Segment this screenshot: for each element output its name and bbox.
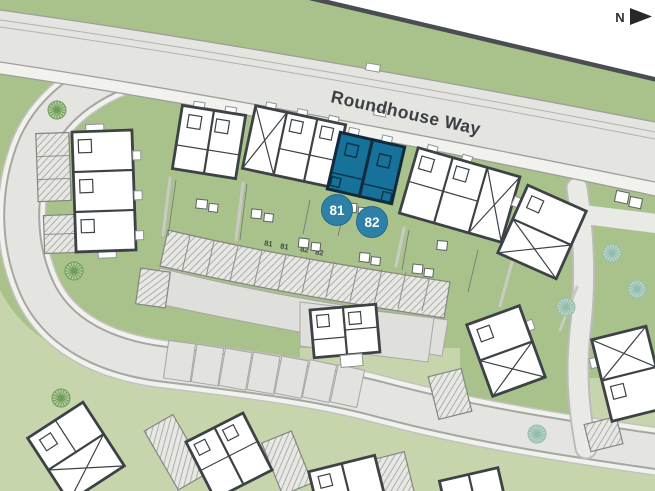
tree-icon xyxy=(65,262,83,280)
tree-icon xyxy=(48,101,66,119)
plot-badge-81-number: 81 xyxy=(329,203,345,218)
tree-icon xyxy=(52,389,70,407)
tree-icon xyxy=(628,280,646,298)
site-plan-map: 81 81 82 82 xyxy=(0,0,655,491)
plot-badge-82-number: 82 xyxy=(364,215,379,230)
bay-label-81b: 81 xyxy=(280,241,290,251)
tree-icon xyxy=(603,244,621,262)
tree-icon xyxy=(528,425,546,443)
compass-n-label: N xyxy=(615,10,624,25)
house-row-a1 xyxy=(172,99,246,178)
tree-icon xyxy=(557,298,575,316)
plot-badge-81[interactable]: 81 xyxy=(322,195,353,226)
plot-badge-82[interactable]: 82 xyxy=(357,207,388,238)
house-terrace-west xyxy=(72,123,145,259)
site-plan-page: 81 81 82 82 xyxy=(0,0,655,491)
footpath-east xyxy=(580,214,655,224)
bay-label-81a: 81 xyxy=(264,238,274,248)
